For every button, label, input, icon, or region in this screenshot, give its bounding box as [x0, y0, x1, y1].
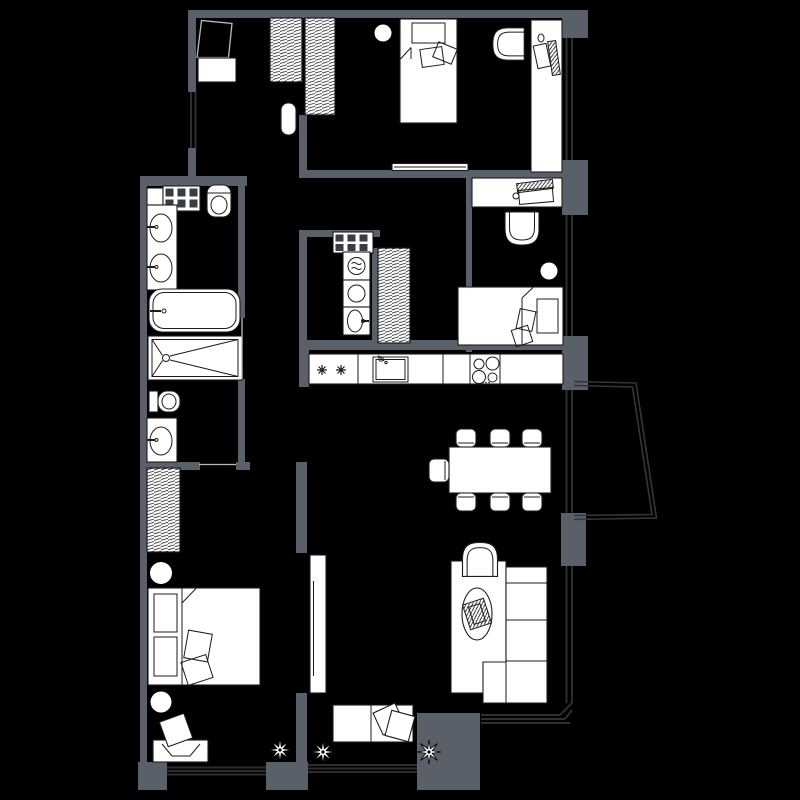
- double-bed: [148, 588, 260, 685]
- laundry-sink-icon: [343, 307, 370, 335]
- room-kitchen: [309, 354, 563, 384]
- bedside-lamp-icon: [151, 692, 172, 713]
- bedroom1-wardrobe-icon: [305, 18, 335, 115]
- dining-chair: [522, 429, 542, 447]
- dryer-icon: [343, 280, 370, 307]
- daybed-bench: [333, 703, 415, 742]
- tub-armchair-icon: [462, 542, 497, 576]
- dining-chair: [522, 493, 542, 511]
- washbasin-counter: [147, 205, 177, 290]
- bathtub-icon: [149, 289, 240, 332]
- entry-cabinet: [198, 58, 236, 82]
- shelf: [147, 188, 163, 205]
- dining-chair: [456, 493, 476, 511]
- single-bed: [458, 287, 563, 347]
- tub-armchair-icon: [505, 212, 539, 245]
- shower-tray-icon: [148, 336, 242, 380]
- floor-plan-stage: [0, 0, 800, 800]
- coffee-table-icon: [462, 588, 492, 640]
- dining-chair: [456, 429, 476, 447]
- bedroom3-wardrobe-icon: [147, 468, 180, 552]
- floor-plan-svg: [0, 0, 800, 800]
- dining-chair: [490, 429, 510, 447]
- tub-armchair-icon: [493, 28, 524, 60]
- kitchen-counter: [309, 354, 563, 384]
- ceiling-lamp-icon: [541, 263, 558, 280]
- plant-icon: [417, 740, 441, 764]
- sliding-door-living: [310, 555, 326, 693]
- desk: [531, 20, 562, 172]
- pouf: [281, 103, 296, 135]
- single-bed: [400, 19, 457, 123]
- dining-chair: [490, 493, 510, 511]
- dining-chair: [429, 459, 449, 482]
- dining-table: [449, 447, 551, 493]
- sliding-door-bedroom1: [392, 164, 468, 171]
- wc-toilet-icon: [149, 391, 180, 412]
- plant-icon: [311, 740, 335, 764]
- ceiling-lamp-icon: [375, 25, 392, 42]
- laundry-vent-grid: [333, 232, 373, 253]
- hall-closet-hatched: [378, 248, 410, 343]
- plant-icon: [268, 738, 292, 762]
- desk: [153, 740, 208, 762]
- bedside-lamp-icon: [150, 562, 172, 584]
- toilet-icon: [207, 185, 231, 217]
- entry-wardrobe-icon: [270, 18, 302, 82]
- wc-washbasin: [147, 418, 177, 462]
- washing-machine-icon: [343, 252, 370, 280]
